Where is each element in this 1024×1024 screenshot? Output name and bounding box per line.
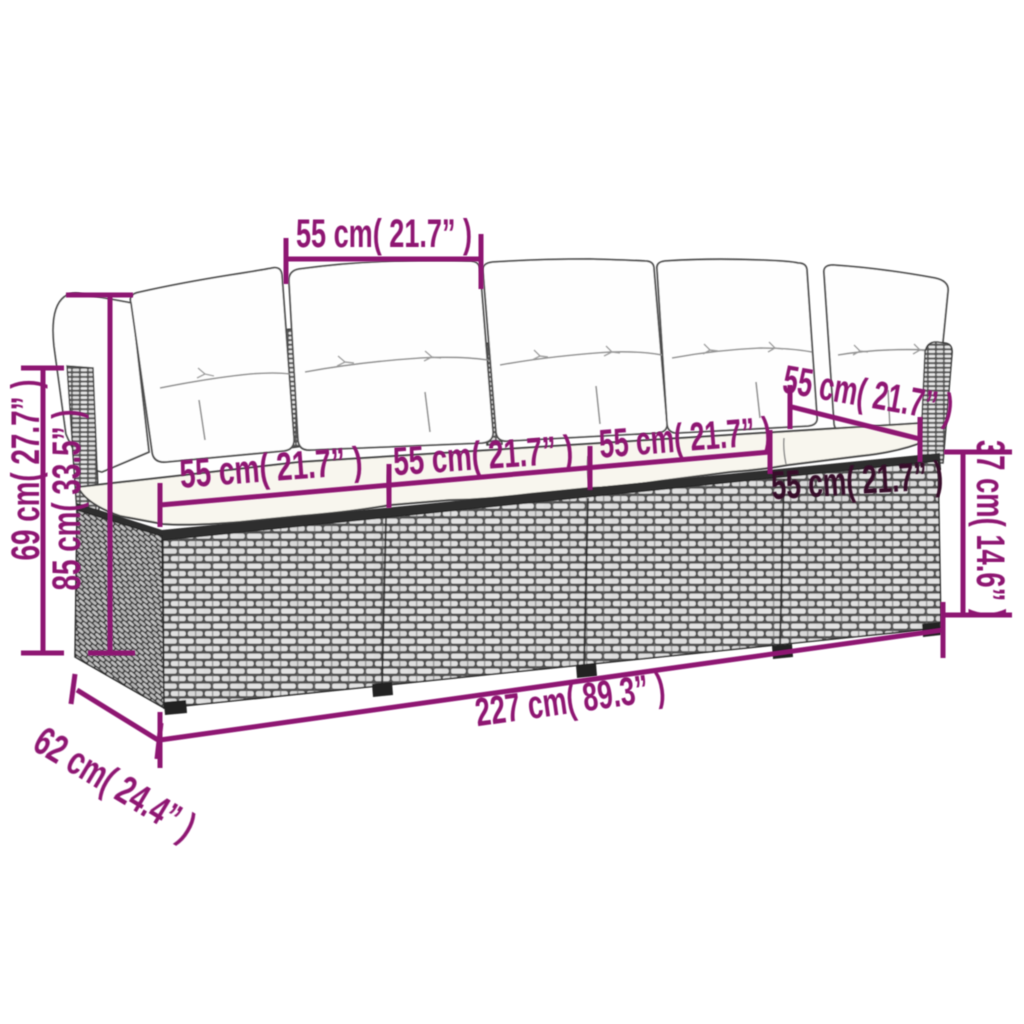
svg-text:69 cm( 27.7” ): 69 cm( 27.7” ) xyxy=(4,380,48,561)
svg-text:37 cm( 14.6” ): 37 cm( 14.6” ) xyxy=(968,440,1012,618)
svg-text:85 cm( 33.5” ): 85 cm( 33.5” ) xyxy=(45,410,89,591)
svg-text:55 cm( 21.7” ): 55 cm( 21.7” ) xyxy=(296,212,472,256)
